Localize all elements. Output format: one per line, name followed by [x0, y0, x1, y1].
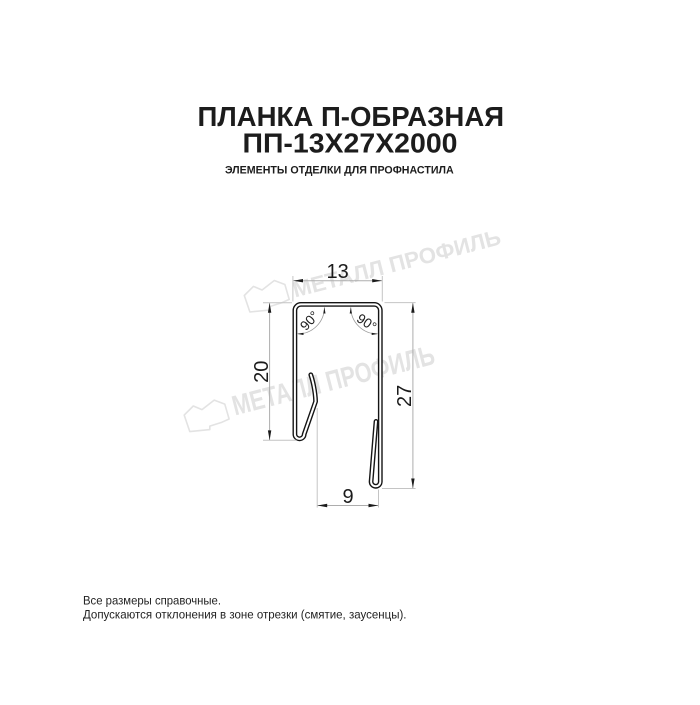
svg-text:ПП-13Х27Х2000: ПП-13Х27Х2000 [243, 128, 458, 159]
svg-text:ЭЛЕМЕНТЫ ОТДЕЛКИ ДЛЯ ПРОФНАСТИ: ЭЛЕМЕНТЫ ОТДЕЛКИ ДЛЯ ПРОФНАСТИЛА [225, 165, 454, 177]
svg-text:9: 9 [342, 486, 353, 508]
svg-text:27: 27 [394, 385, 416, 407]
svg-text:20: 20 [251, 361, 273, 383]
svg-text:Все размеры справочные.: Все размеры справочные. [83, 593, 221, 607]
svg-text:Допускаются отклонения в зоне: Допускаются отклонения в зоне отрезки (с… [83, 608, 407, 622]
svg-text:13: 13 [326, 261, 348, 283]
